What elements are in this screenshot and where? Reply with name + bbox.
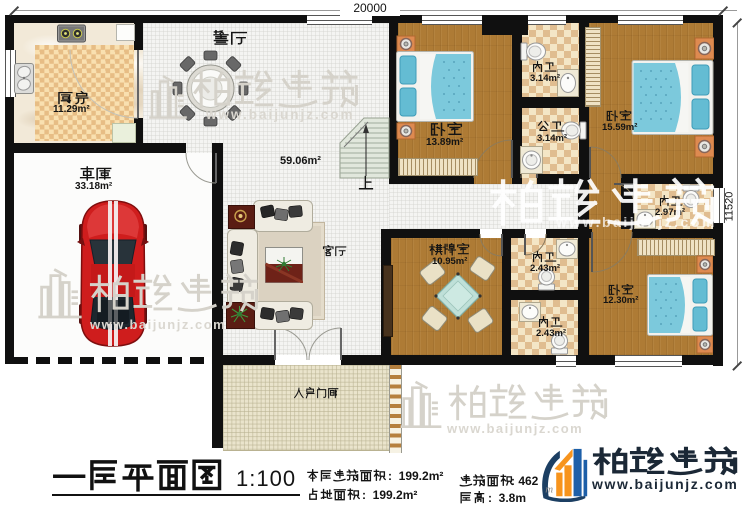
svg-text:m: m bbox=[545, 484, 553, 496]
